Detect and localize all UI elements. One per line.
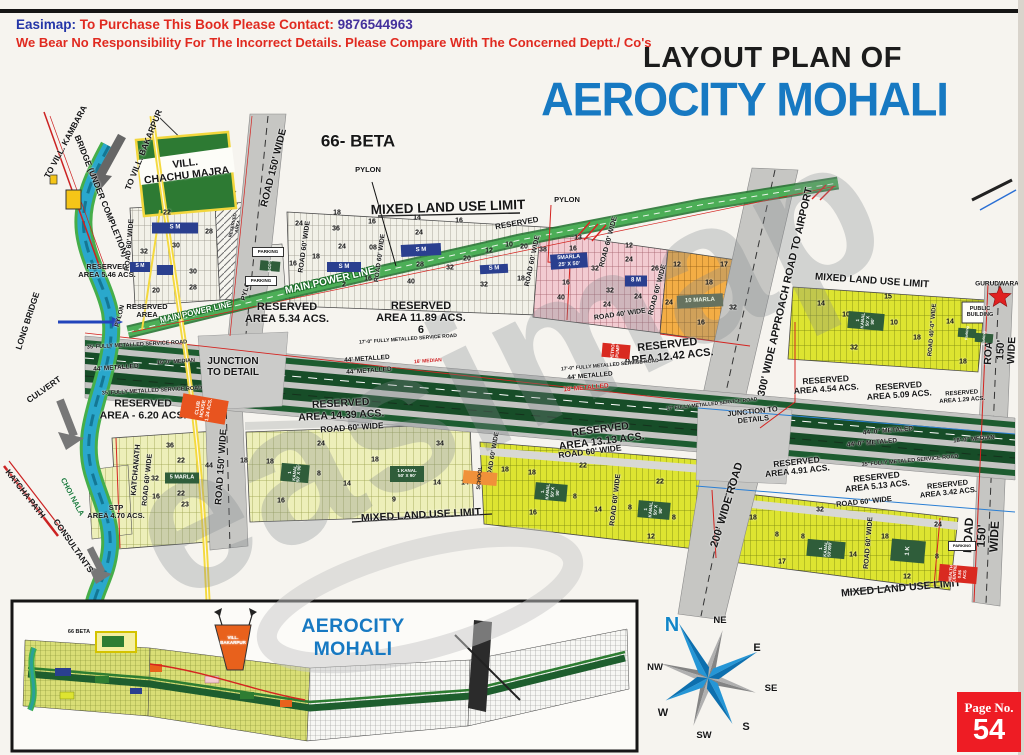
scan-right-edge — [1018, 0, 1024, 755]
contact-text: To Purchase This Book Please Contact: — [80, 17, 334, 32]
inset-title: AEROCITY MOHALI — [268, 615, 438, 661]
compass-rose — [637, 597, 782, 746]
page-number-value: 54 — [973, 716, 1005, 745]
brand-name: Easimap: — [16, 17, 76, 32]
page-number-badge: Page No. 54 — [957, 692, 1021, 752]
disclaimer-text: We Bear No Responsibility For The Incorr… — [16, 34, 652, 52]
contact-phone: 9876544963 — [338, 17, 413, 32]
publisher-header: Easimap: To Purchase This Book Please Co… — [16, 16, 652, 52]
scan-top-edge — [0, 9, 1024, 13]
contact-line: Easimap: To Purchase This Book Please Co… — [16, 16, 652, 34]
page-title-line2: AEROCITY MOHALI — [492, 73, 997, 128]
map-book-page: Easimap: To Purchase This Book Please Co… — [0, 0, 1024, 755]
page-title-line1: LAYOUT PLAN OF — [600, 42, 945, 75]
village-chachu-majra — [136, 132, 236, 216]
